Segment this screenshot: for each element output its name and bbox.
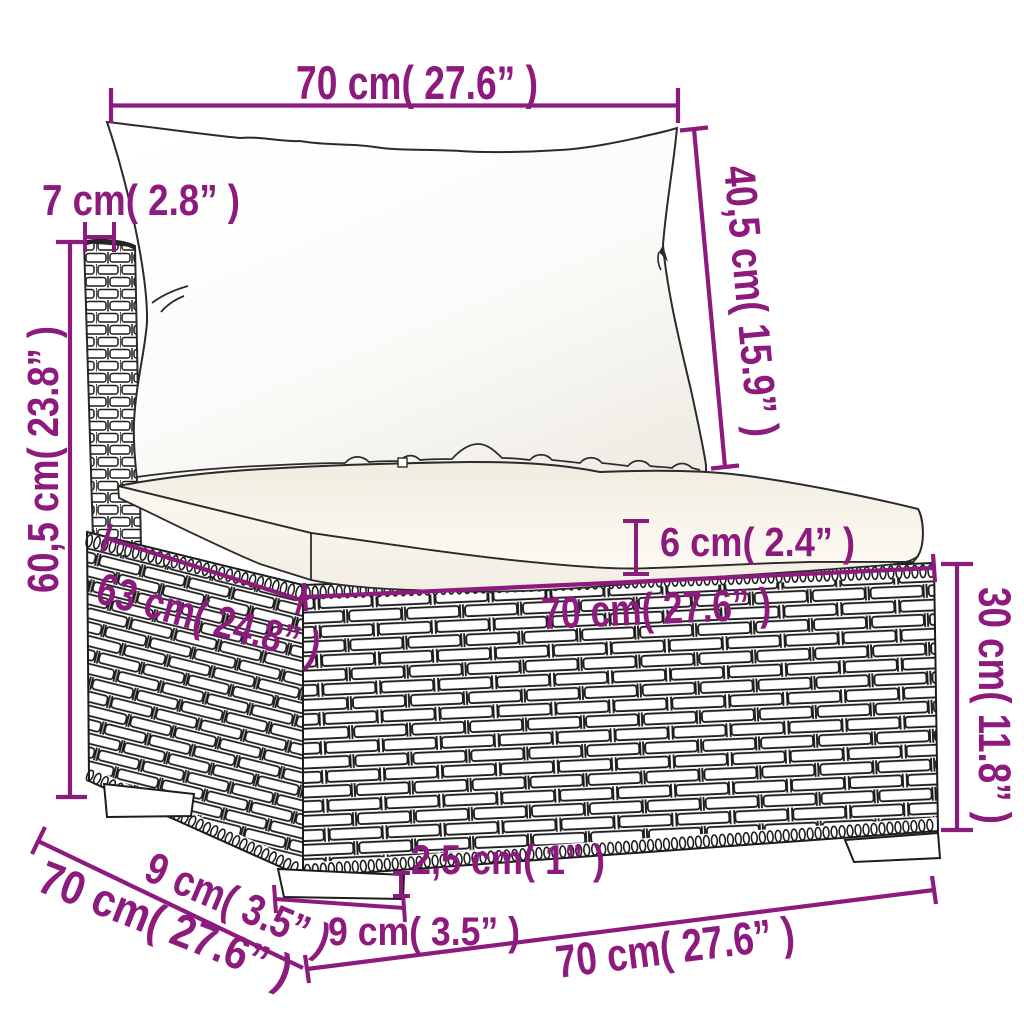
svg-text:70 cm( 27.6” ): 70 cm( 27.6” ) [540,578,772,639]
svg-text:60,5 cm( 23.8” ): 60,5 cm( 23.8” ) [19,326,68,593]
svg-text:6 cm( 2.4” ): 6 cm( 2.4” ) [660,519,855,565]
svg-text:2,5 cm( 1” ): 2,5 cm( 1” ) [411,836,605,883]
svg-text:70 cm( 27.6” ): 70 cm( 27.6” ) [296,56,538,109]
svg-text:30 cm( 11.8” ): 30 cm( 11.8” ) [969,587,1020,824]
svg-text:7 cm( 2.8” ): 7 cm( 2.8” ) [42,176,240,225]
